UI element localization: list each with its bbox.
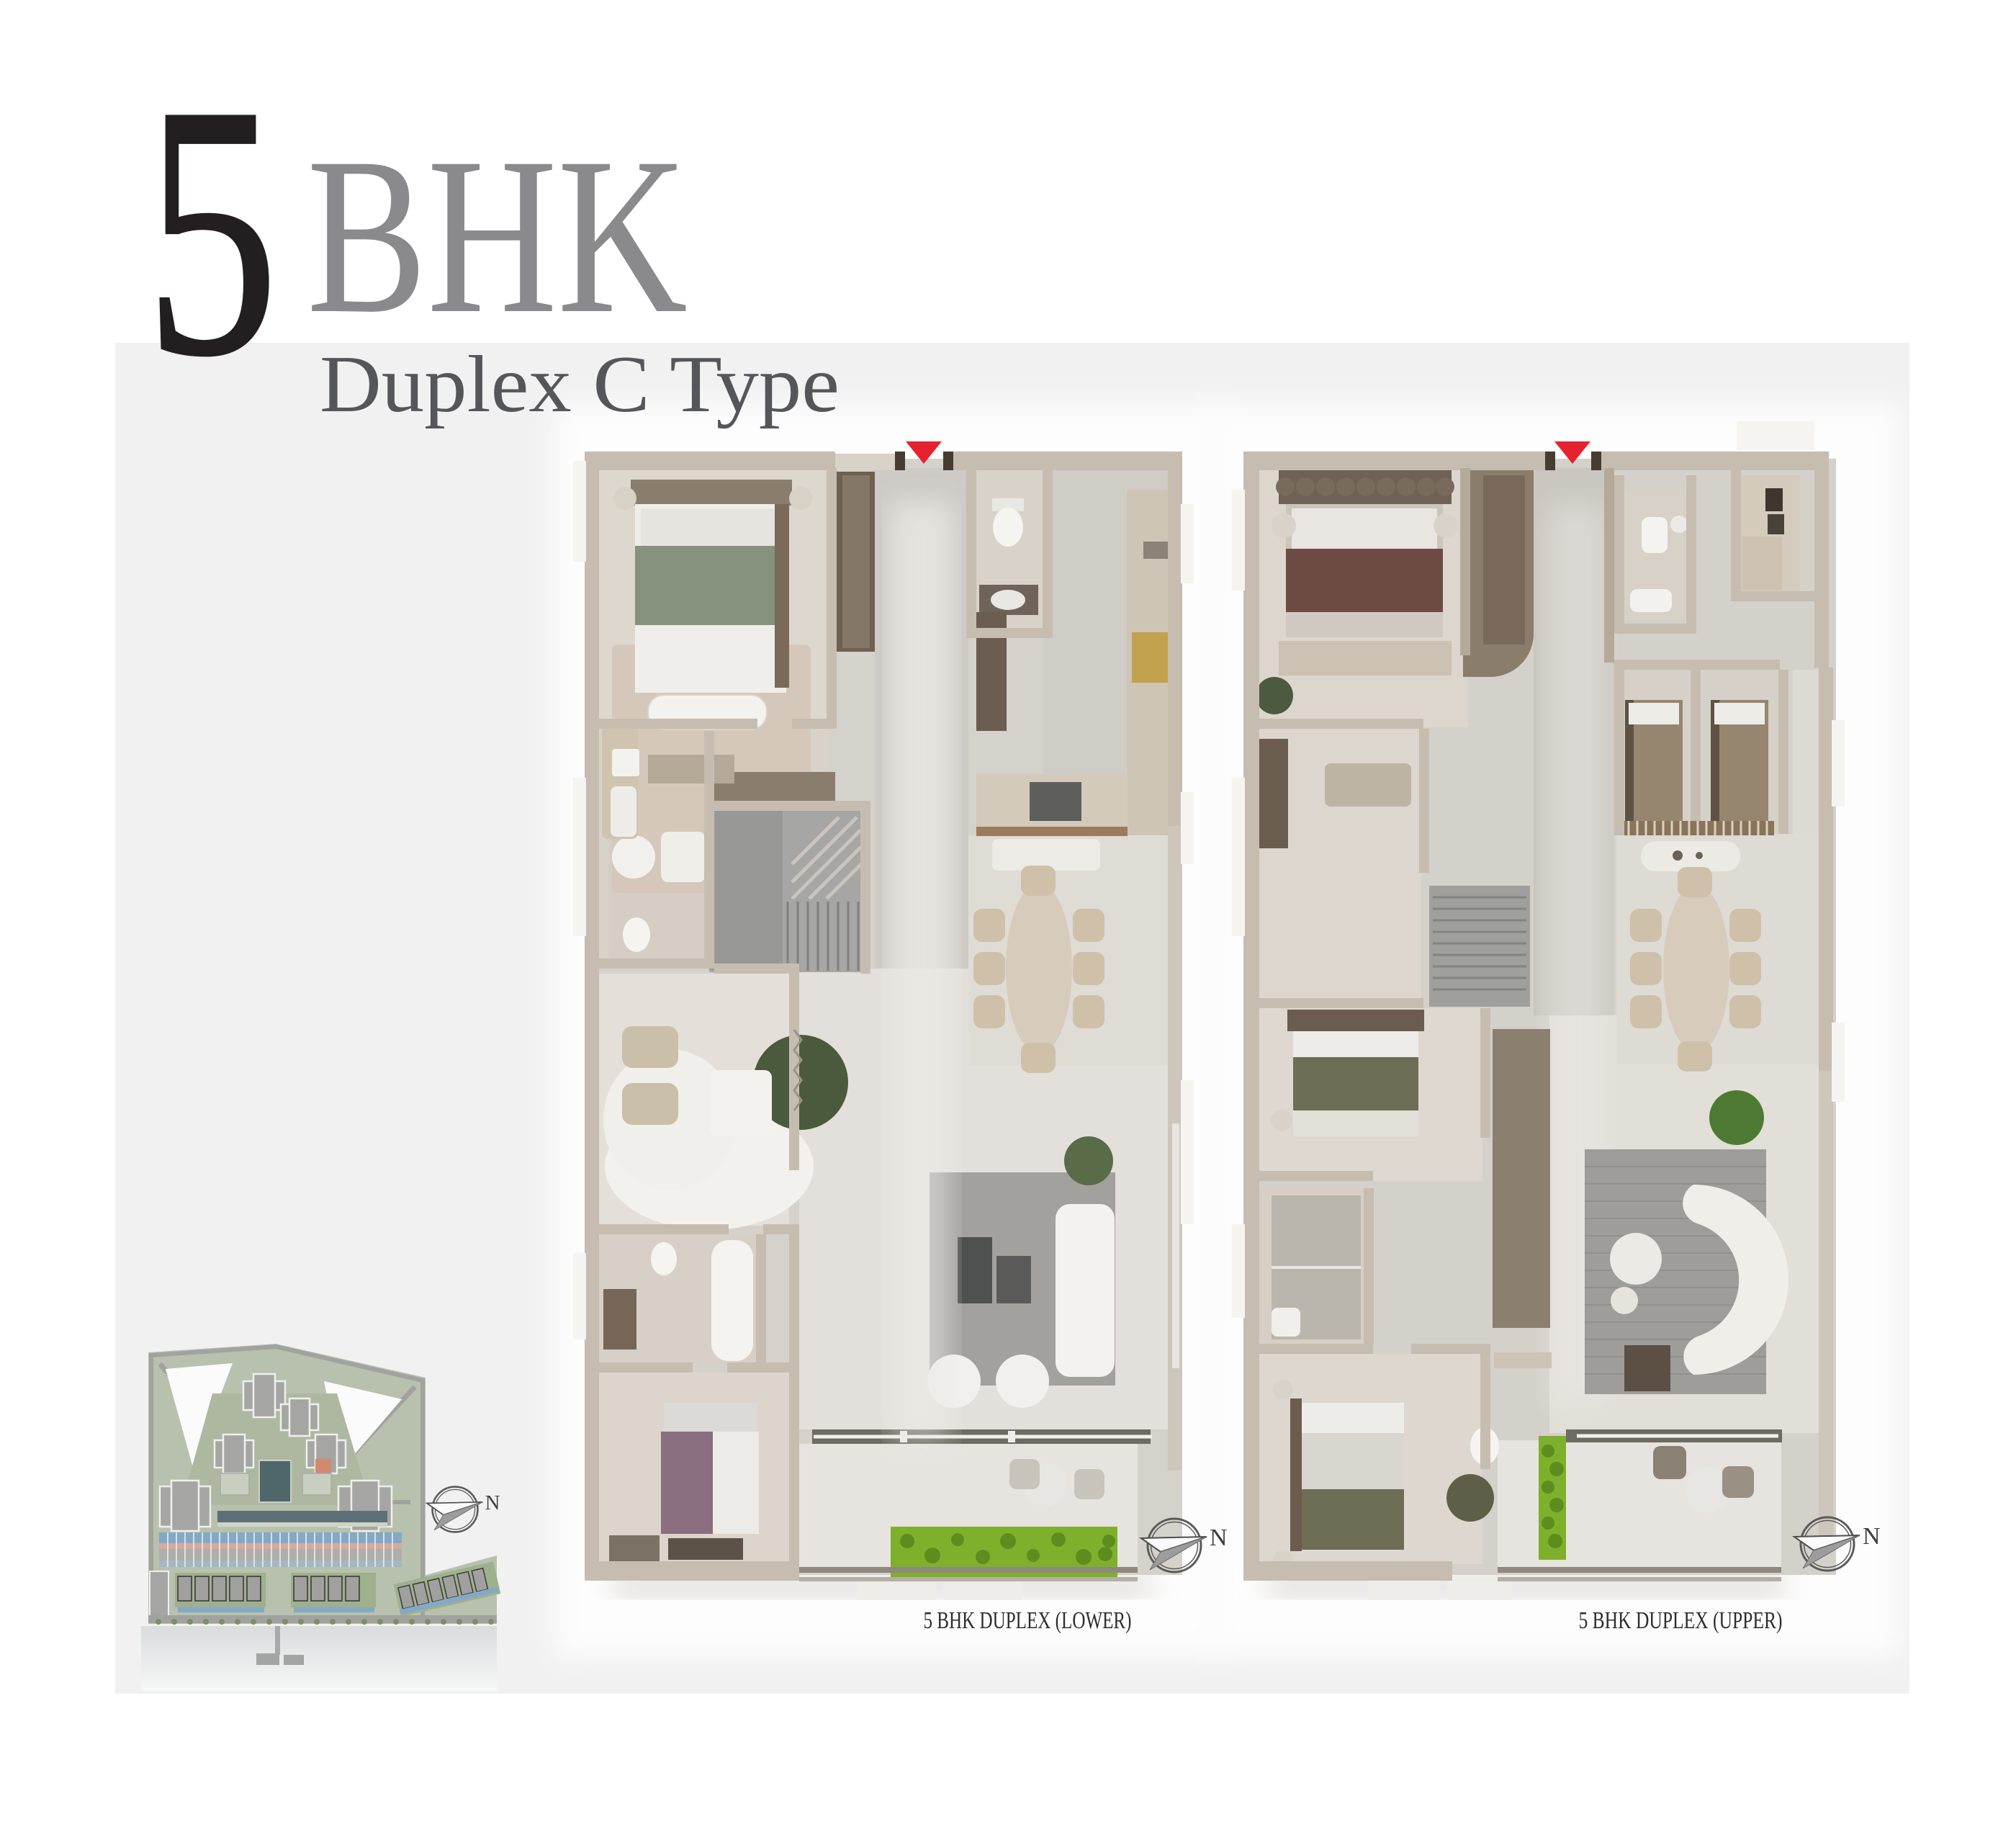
svg-text:BHK: BHK (307, 112, 688, 360)
svg-text:N: N (485, 1491, 500, 1514)
svg-text:Duplex C Type: Duplex C Type (320, 340, 840, 429)
svg-text:N: N (1863, 1523, 1881, 1550)
svg-text:N: N (1210, 1525, 1228, 1551)
svg-text:5 BHK DUPLEX (UPPER): 5 BHK DUPLEX (UPPER) (1579, 1607, 1783, 1634)
svg-text:5: 5 (145, 32, 279, 431)
svg-text:5 BHK DUPLEX (LOWER): 5 BHK DUPLEX (LOWER) (924, 1607, 1132, 1634)
